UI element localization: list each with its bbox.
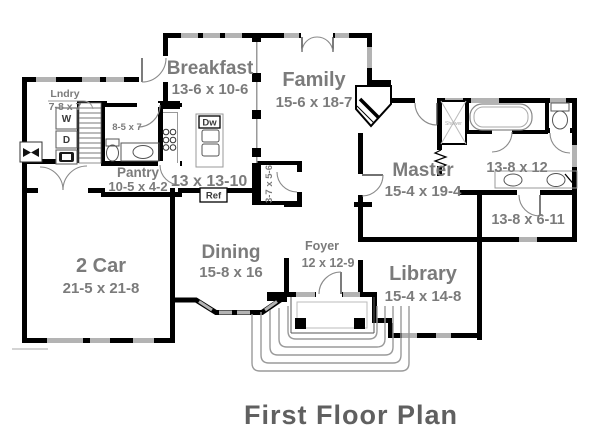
window — [572, 145, 577, 167]
garage-door — [90, 338, 110, 343]
step — [279, 306, 385, 347]
room-dims-powder: 3-7 x 5-6 — [264, 165, 275, 203]
window — [203, 33, 220, 38]
porch — [291, 297, 374, 333]
wall — [572, 98, 577, 242]
room-label-library: Library — [389, 263, 458, 285]
family-french-doors — [302, 37, 333, 52]
window — [335, 33, 349, 38]
window — [284, 33, 299, 38]
shower-label: Shower — [445, 121, 462, 127]
wall — [358, 260, 363, 297]
window — [436, 333, 451, 338]
hvac-unit-icon — [20, 142, 42, 162]
room-dims-master-bath: 13-8 x 12 — [486, 160, 547, 176]
wall — [170, 188, 175, 343]
cooktop-burners — [163, 129, 176, 150]
room-label-master: Master — [392, 160, 454, 181]
room-labels: Breakfast 13-6 x 10-6 Family 15-6 x 18-7… — [49, 58, 565, 305]
wall — [358, 133, 363, 174]
refrigerator-label: Ref — [206, 191, 222, 202]
column-post — [252, 148, 261, 157]
room-dims-breakfast: 13-6 x 10-6 — [172, 81, 249, 98]
plan-title: First Floor Plan — [244, 400, 458, 430]
window — [367, 47, 372, 68]
sidelite — [296, 292, 315, 297]
wall — [256, 161, 302, 165]
porch-column — [354, 318, 365, 329]
room-label-pantry: Pantry — [117, 165, 160, 180]
wall — [101, 101, 105, 166]
hall-bath-fixtures — [106, 139, 159, 161]
window — [106, 77, 124, 82]
opening — [139, 77, 164, 82]
wall — [284, 202, 302, 207]
dryer-label: D — [63, 135, 70, 146]
sink — [133, 146, 153, 159]
wall — [284, 258, 289, 297]
wall — [354, 202, 372, 207]
column-post — [252, 110, 261, 119]
toilet-tank — [551, 103, 569, 111]
window — [36, 77, 56, 82]
window — [471, 98, 499, 103]
room-dims-hall-bath: 8-5 x 7 — [112, 122, 142, 133]
powder-door — [277, 172, 297, 192]
room-label-laundry: Lndry — [50, 88, 79, 100]
room-dims-library: 15-4 x 14-8 — [385, 288, 462, 305]
stairs — [79, 103, 101, 163]
colonnade-line — [256, 42, 258, 163]
room-dims-master: 15-4 x 19-4 — [385, 183, 462, 200]
room-label-garage: 2 Car — [76, 255, 126, 277]
opening — [316, 292, 342, 297]
fireplace-surround — [356, 86, 391, 126]
window — [82, 77, 100, 82]
opening — [517, 190, 540, 195]
window — [237, 311, 250, 315]
room-label-dining: Dining — [201, 242, 260, 263]
opening — [297, 172, 302, 192]
entry-steps — [252, 306, 409, 371]
front-door — [319, 272, 341, 294]
wall — [477, 194, 482, 340]
room-dims-family: 15-6 x 18-7 — [276, 94, 353, 111]
room-dims-dining: 15-8 x 16 — [199, 264, 262, 281]
fireplace — [356, 86, 391, 126]
wall — [22, 77, 27, 343]
toilet-bowl — [553, 111, 568, 129]
wall — [252, 163, 261, 205]
dishwasher-label: Dw — [202, 118, 217, 129]
column-post — [252, 33, 261, 42]
porch-column — [295, 318, 306, 329]
master-hall-door — [362, 175, 383, 196]
master-bath-door — [492, 132, 512, 152]
wall — [158, 101, 180, 109]
washer-label: W — [62, 114, 72, 125]
sidelite — [343, 292, 360, 297]
garage-door — [47, 338, 83, 343]
wall — [358, 237, 577, 242]
floor-plan-drawing: Breakfast 13-6 x 10-6 Family 15-6 x 18-7… — [0, 0, 600, 448]
room-dims-garage: 21-5 x 21-8 — [63, 280, 140, 297]
room-dims-master-closet: 13-8 x 6-11 — [491, 212, 564, 228]
room-dims-foyer: 12 x 12-9 — [302, 256, 355, 270]
window — [225, 33, 242, 38]
utility-sink-basin — [62, 154, 71, 160]
window — [219, 311, 232, 315]
room-label-foyer: Foyer — [305, 239, 339, 253]
garage-door — [133, 338, 154, 343]
floor-plan-canvas: Breakfast 13-6 x 10-6 Family 15-6 x 18-7… — [0, 0, 600, 448]
toilet-bowl — [107, 145, 119, 161]
room-label-breakfast: Breakfast — [167, 58, 254, 79]
window — [550, 98, 566, 103]
room-label-family: Family — [282, 69, 346, 91]
column-post — [252, 73, 261, 82]
room-dims-laundry: 7-8 x 7 — [49, 101, 82, 113]
window — [181, 33, 198, 38]
sink — [547, 174, 565, 187]
mud-hall-doors — [40, 166, 87, 190]
room-dims-pantry: 10-5 x 4-2 — [108, 179, 167, 194]
master-north-door — [415, 103, 437, 125]
wall — [388, 333, 480, 338]
opening — [158, 161, 180, 166]
wall — [372, 318, 392, 323]
opening — [137, 103, 160, 107]
room-dims-kitchen: 13 x 13-10 — [171, 173, 248, 190]
toilet-room-door — [550, 133, 570, 153]
opening — [415, 98, 437, 103]
window — [519, 237, 537, 242]
